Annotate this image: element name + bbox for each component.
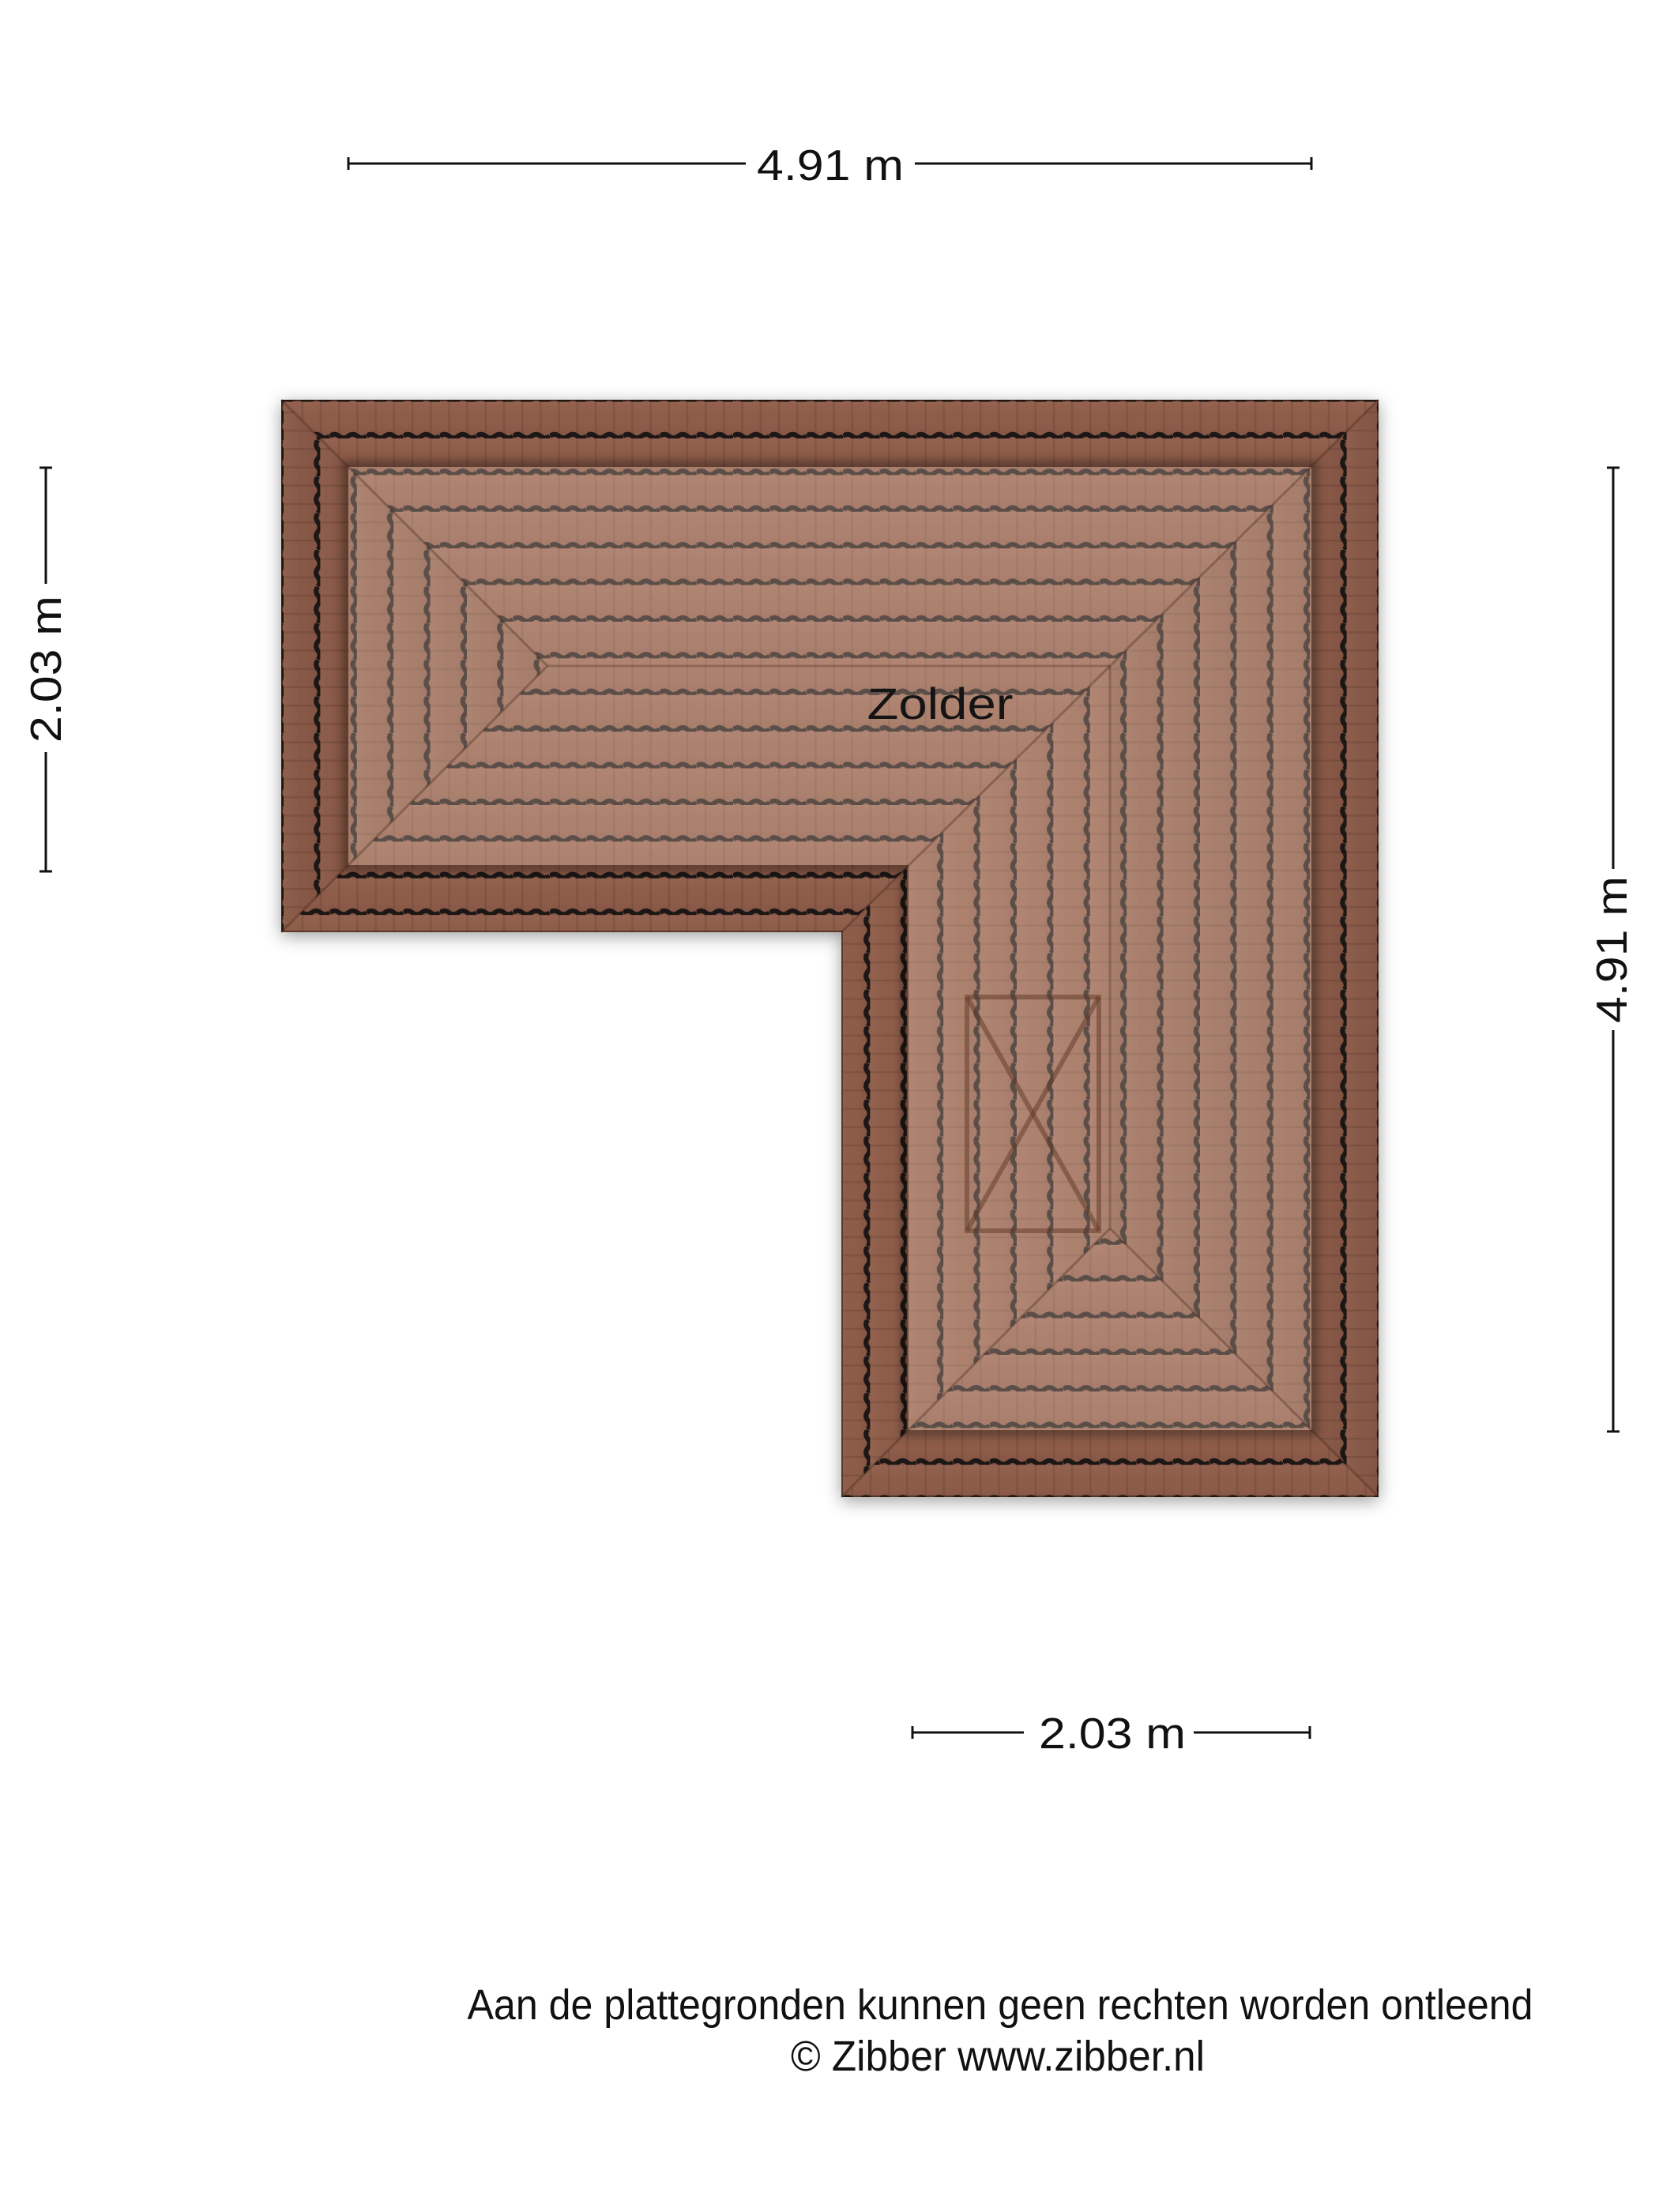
svg-text:Zolder: Zolder <box>867 679 1014 728</box>
svg-text:4.91 m: 4.91 m <box>1587 876 1636 1023</box>
svg-text:Aan de plattegronden kunnen ge: Aan de plattegronden kunnen geen rechten… <box>468 1981 1533 2029</box>
svg-text:4.91 m: 4.91 m <box>757 141 904 190</box>
svg-text:© Zibber www.zibber.nl: © Zibber www.zibber.nl <box>791 2033 1205 2080</box>
svg-text:2.03 m: 2.03 m <box>1039 1709 1186 1758</box>
svg-text:2.03 m: 2.03 m <box>21 596 70 743</box>
